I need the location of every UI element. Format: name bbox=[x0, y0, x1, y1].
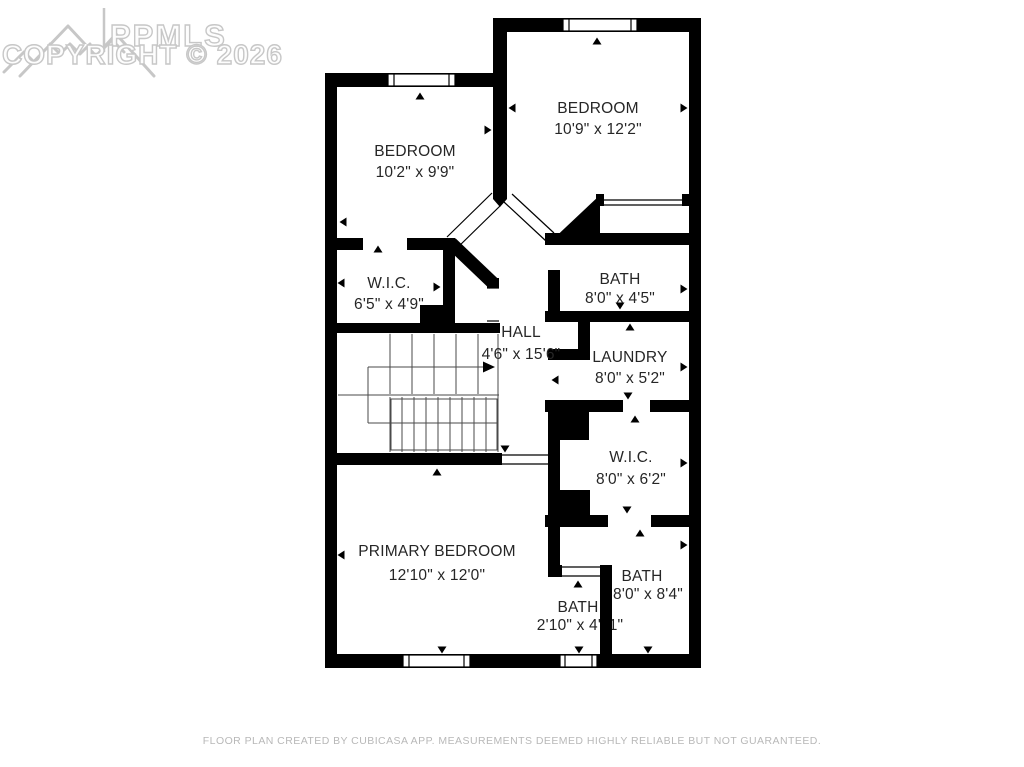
wall-bottom bbox=[325, 654, 701, 668]
room-label-bedroom-top-right: BEDROOM 10'9" x 12'2" bbox=[554, 100, 642, 138]
room-label-bath-upper: BATH 8'0" x 4'5" bbox=[585, 271, 655, 307]
closet-shelf bbox=[596, 194, 690, 206]
room-labels: BEDROOM 10'9" x 12'2" BEDROOM 10'2" x 9'… bbox=[354, 100, 683, 603]
room-label-laundry: LAUNDRY 8'0" x 5'2" bbox=[592, 349, 667, 387]
room-label-wic-left: W.I.C. 6'5" x 4'9" bbox=[354, 275, 424, 313]
staircase bbox=[338, 334, 499, 452]
disclaimer-text: FLOOR PLAN CREATED BY CUBICASA APP. MEAS… bbox=[0, 735, 1024, 747]
room-name: BEDROOM bbox=[557, 100, 639, 117]
window-primary-bedroom bbox=[403, 655, 470, 667]
door-primary-bedroom bbox=[502, 455, 548, 464]
door-hall-stairs bbox=[487, 288, 499, 321]
room-label-bath-lower-right: BATH 8'0" x 8'4" bbox=[613, 568, 683, 603]
room-dimensions: 8'0" x 4'5" bbox=[585, 290, 655, 307]
room-name: BATH bbox=[622, 568, 663, 585]
room-dimensions: 10'2" x 9'9" bbox=[376, 164, 455, 181]
room-name: BATH bbox=[558, 599, 599, 616]
room-label-bedroom-top-left: BEDROOM 10'2" x 9'9" bbox=[374, 143, 456, 181]
room-dimensions: 8'0" x 5'2" bbox=[595, 370, 665, 387]
room-name: W.I.C. bbox=[609, 449, 652, 466]
room-name: BATH bbox=[600, 271, 641, 288]
floor-plan-page: PPMLS COPYRIGHT © 2026 BATH 2'10" x 4'11… bbox=[0, 0, 1024, 767]
window-bedroom-left bbox=[388, 74, 455, 86]
room-label-wic-right: W.I.C. 8'0" x 6'2" bbox=[596, 449, 666, 488]
watermark-copyright: COPYRIGHT © 2026 bbox=[2, 39, 283, 70]
floor-plan-drawing: PPMLS COPYRIGHT © 2026 BATH 2'10" x 4'11… bbox=[0, 0, 1024, 767]
room-name: BEDROOM bbox=[374, 143, 456, 160]
room-dimensions: 10'9" x 12'2" bbox=[554, 121, 642, 138]
watermark: PPMLS COPYRIGHT © 2026 bbox=[2, 8, 283, 76]
room-dimensions: 8'0" x 6'2" bbox=[596, 471, 666, 488]
window-bedroom-right bbox=[563, 19, 637, 31]
room-name: HALL bbox=[501, 324, 541, 341]
wall-bedroom-divider bbox=[493, 18, 507, 196]
wall-hall-peak bbox=[493, 196, 507, 207]
door-small-bath bbox=[560, 567, 602, 576]
wall-left bbox=[325, 73, 337, 668]
room-dimensions: 12'10" x 12'0" bbox=[389, 567, 485, 584]
room-name: LAUNDRY bbox=[592, 349, 667, 366]
room-dimensions: 8'0" x 8'4" bbox=[613, 586, 683, 603]
room-name: W.I.C. bbox=[367, 275, 410, 292]
window-small-bath bbox=[560, 655, 597, 667]
wall-right bbox=[689, 18, 701, 668]
room-dimensions: 4'6" x 15'6" bbox=[482, 346, 561, 363]
room-label-primary-bedroom: PRIMARY BEDROOM 12'10" x 12'0" bbox=[358, 543, 515, 584]
room-name: PRIMARY BEDROOM bbox=[358, 543, 515, 560]
room-dimensions: 6'5" x 4'9" bbox=[354, 296, 424, 313]
